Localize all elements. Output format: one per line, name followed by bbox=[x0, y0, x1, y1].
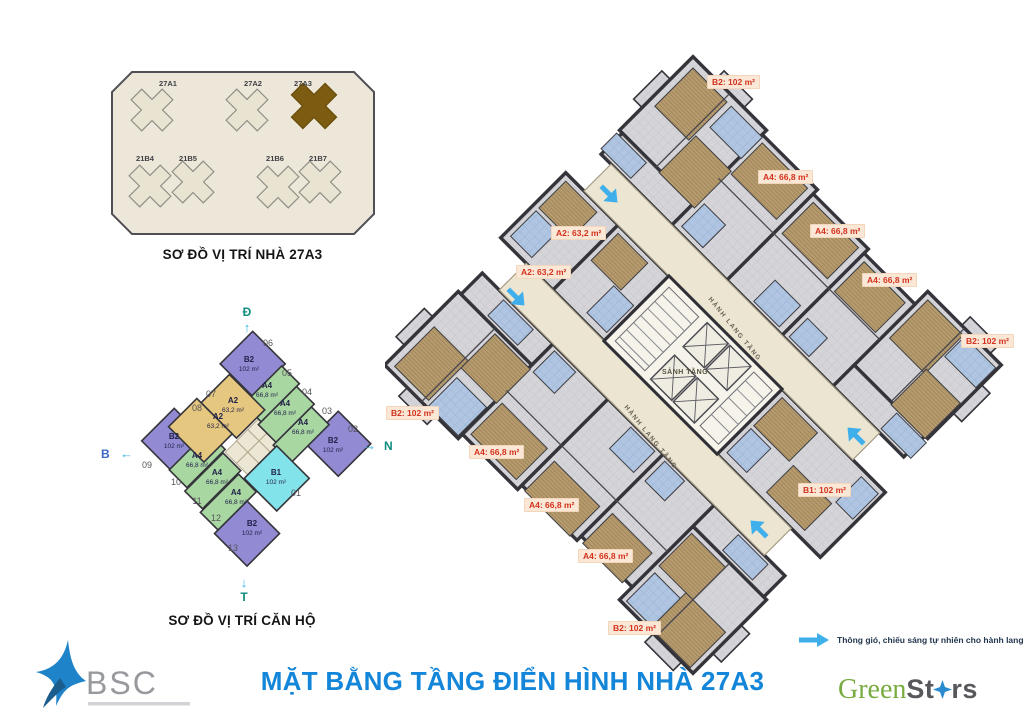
compass-east-label: Đ bbox=[243, 305, 252, 319]
bsc-logo-graphic: BSC bbox=[30, 638, 215, 718]
svg-text:B1: B1 bbox=[271, 468, 282, 477]
svg-text:A4: A4 bbox=[280, 399, 291, 408]
unit-number-05: 05 bbox=[282, 368, 292, 378]
svg-text:A4: A4 bbox=[231, 488, 242, 497]
site-label-21B5: 21B5 bbox=[179, 154, 197, 163]
svg-text:A4: A4 bbox=[192, 451, 203, 460]
bsc-wordmark: BSC bbox=[86, 665, 158, 701]
unit-label-a4-ne3: A4: 66,8 m² bbox=[862, 273, 917, 287]
unit-number-08: 08 bbox=[192, 403, 202, 413]
greenstars-rs-text: rs bbox=[951, 674, 978, 705]
unit-location-diagram: B2 102 m² A4 66,8 m² A4 66,8 m² A4 66,8 … bbox=[87, 298, 417, 628]
site-plan: 27A1 27A2 27A3 21B4 21B5 21B6 21B7 SƠ ĐỒ… bbox=[100, 62, 385, 262]
unit-number-03: 03 bbox=[322, 406, 332, 416]
svg-text:102 m²: 102 m² bbox=[164, 443, 185, 450]
unit-diagram-drawing: B2 102 m² A4 66,8 m² A4 66,8 m² A4 66,8 … bbox=[87, 298, 417, 606]
unit-label-a4-sw3: A4: 66,8 m² bbox=[469, 445, 524, 459]
site-plan-drawing: 27A1 27A2 27A3 21B4 21B5 21B6 21B7 bbox=[100, 62, 385, 240]
site-label-21B7: 21B7 bbox=[309, 154, 327, 163]
svg-text:A4: A4 bbox=[262, 381, 273, 390]
greenstars-st-text: St bbox=[906, 674, 934, 705]
site-label-27A3: 27A3 bbox=[294, 79, 312, 88]
svg-text:66,8 m²: 66,8 m² bbox=[274, 410, 297, 417]
svg-text:B2: B2 bbox=[244, 355, 255, 364]
compass-right-arrow-icon: → bbox=[363, 438, 376, 453]
svg-text:A2: A2 bbox=[228, 396, 239, 405]
unit-number-11: 11 bbox=[192, 496, 201, 506]
legend-arrow-icon bbox=[798, 633, 830, 647]
svg-text:66,8 m²: 66,8 m² bbox=[292, 429, 315, 436]
unit-number-07: 07 bbox=[206, 389, 216, 399]
site-label-21B4: 21B4 bbox=[136, 154, 155, 163]
site-plan-caption: SƠ ĐỒ VỊ TRÍ NHÀ 27A3 bbox=[100, 247, 385, 262]
bsc-logo: BSC bbox=[30, 638, 215, 723]
svg-text:63,2 m²: 63,2 m² bbox=[207, 423, 230, 430]
unit-label-a2-upper: A2: 63,2 m² bbox=[551, 226, 606, 240]
compass-left-arrow-icon: ← bbox=[120, 446, 133, 461]
unit-label-b1: B1: 102 m² bbox=[798, 483, 851, 497]
unit-label-b2-right: B2: 102 m² bbox=[961, 334, 1014, 348]
compass-up-arrow-icon: ↑ bbox=[244, 320, 251, 335]
greenstars-star-icon bbox=[933, 680, 952, 699]
legend: Thông gió, chiếu sáng tự nhiên cho hành … bbox=[798, 633, 1024, 647]
typical-floor-plan-drawing bbox=[385, 48, 1024, 688]
unit-number-06: 06 bbox=[263, 338, 273, 348]
unit-label-a2-lower: A2: 63,2 m² bbox=[516, 265, 571, 279]
unit-number-09: 09 bbox=[142, 460, 152, 470]
page-title: MẶT BẰNG TẦNG ĐIỂN HÌNH NHÀ 27A3 bbox=[240, 666, 785, 697]
svg-text:A4: A4 bbox=[298, 418, 309, 427]
svg-text:102 m²: 102 m² bbox=[242, 530, 263, 537]
unit-label-a4-sw1: A4: 66,8 m² bbox=[578, 549, 633, 563]
svg-text:66,8 m²: 66,8 m² bbox=[225, 499, 248, 506]
unit-number-12: 12 bbox=[211, 513, 221, 523]
svg-text:A4: A4 bbox=[212, 468, 223, 477]
unit-label-b2-bottom: B2: 102 m² bbox=[608, 621, 661, 635]
unit-number-01: 01 bbox=[291, 488, 301, 498]
svg-text:66,8 m²: 66,8 m² bbox=[186, 462, 209, 469]
site-label-27A1: 27A1 bbox=[159, 79, 177, 88]
svg-text:A2: A2 bbox=[213, 412, 224, 421]
compass-south-label: T bbox=[240, 590, 248, 604]
site-label-27A2: 27A2 bbox=[244, 79, 262, 88]
unit-label-a4-ne1: A4: 66,8 m² bbox=[758, 170, 813, 184]
lobby-label: SẢNH TẦNG bbox=[662, 369, 708, 376]
unit-label-a4-sw2: A4: 66,8 m² bbox=[524, 498, 579, 512]
site-label-21B6: 21B6 bbox=[266, 154, 284, 163]
svg-text:B2: B2 bbox=[169, 432, 180, 441]
compass-west-label: B bbox=[101, 447, 110, 461]
svg-text:102 m²: 102 m² bbox=[323, 447, 344, 454]
greenstars-logo: Green St rs bbox=[838, 674, 978, 706]
svg-text:B2: B2 bbox=[247, 519, 258, 528]
svg-text:66,8 m²: 66,8 m² bbox=[256, 392, 279, 399]
svg-text:66,8 m²: 66,8 m² bbox=[206, 479, 229, 486]
unit-label-a4-ne2: A4: 66,8 m² bbox=[810, 224, 865, 238]
svg-text:B2: B2 bbox=[328, 436, 339, 445]
unit-label-b2-top: B2: 102 m² bbox=[707, 75, 760, 89]
unit-number-13: 13 bbox=[228, 543, 238, 553]
greenstars-green-text: Green bbox=[838, 674, 906, 706]
unit-label-b2-left: B2: 102 m² bbox=[386, 406, 439, 420]
legend-text: Thông gió, chiếu sáng tự nhiên cho hành … bbox=[837, 635, 1024, 645]
unit-diagram-caption: SƠ ĐỒ VỊ TRÍ CĂN HỘ bbox=[87, 613, 397, 628]
svg-text:63,2 m²: 63,2 m² bbox=[222, 407, 245, 414]
unit-number-02: 02 bbox=[348, 424, 358, 434]
bsc-star-icon bbox=[36, 640, 86, 706]
bsc-tagline-strip bbox=[88, 702, 190, 706]
unit-number-10: 10 bbox=[171, 477, 181, 487]
svg-text:102 m²: 102 m² bbox=[266, 479, 287, 486]
unit-number-04: 04 bbox=[302, 387, 312, 397]
svg-text:102 m²: 102 m² bbox=[239, 366, 260, 373]
floorplan-page: 27A1 27A2 27A3 21B4 21B5 21B6 21B7 SƠ ĐỒ… bbox=[0, 0, 1024, 724]
compass-down-arrow-icon: ↓ bbox=[241, 575, 248, 590]
